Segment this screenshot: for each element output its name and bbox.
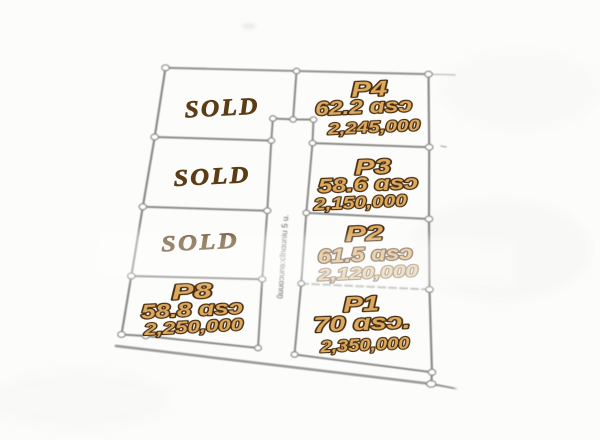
svg-text:SOLD: SOLD xyxy=(184,94,260,124)
svg-text:SOLD: SOLD xyxy=(173,162,251,192)
svg-text:62.2 ɑsɔ: 62.2 ɑsɔ xyxy=(315,95,413,120)
svg-text:70 ɑsɔ.: 70 ɑsɔ. xyxy=(313,309,411,337)
